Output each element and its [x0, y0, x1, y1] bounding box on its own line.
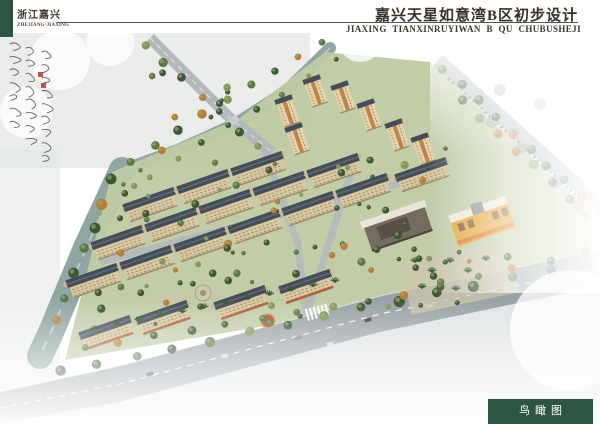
region-label-cn: 浙江嘉兴 — [17, 6, 61, 21]
mist-top-right — [430, 33, 600, 153]
region-label-en: ZHEJIANG·JIAXING — [17, 23, 69, 28]
presentation-sheet: 浙江嘉兴 ZHEJIANG·JIAXING 嘉兴天星如意湾B区初步设计 JIAX… — [0, 0, 600, 424]
corner-mark — [0, 0, 13, 37]
sheet-title-en: JIAXING TIANXINRUYIWAN B QU CHUBUSHEJI — [346, 24, 581, 34]
view-label-text: 鸟瞰图 — [519, 405, 567, 417]
sheet-title-cn: 嘉兴天星如意湾B区初步设计 — [375, 4, 578, 25]
aerial-rendering — [0, 0, 600, 424]
view-label: 鸟瞰图 — [488, 399, 593, 424]
